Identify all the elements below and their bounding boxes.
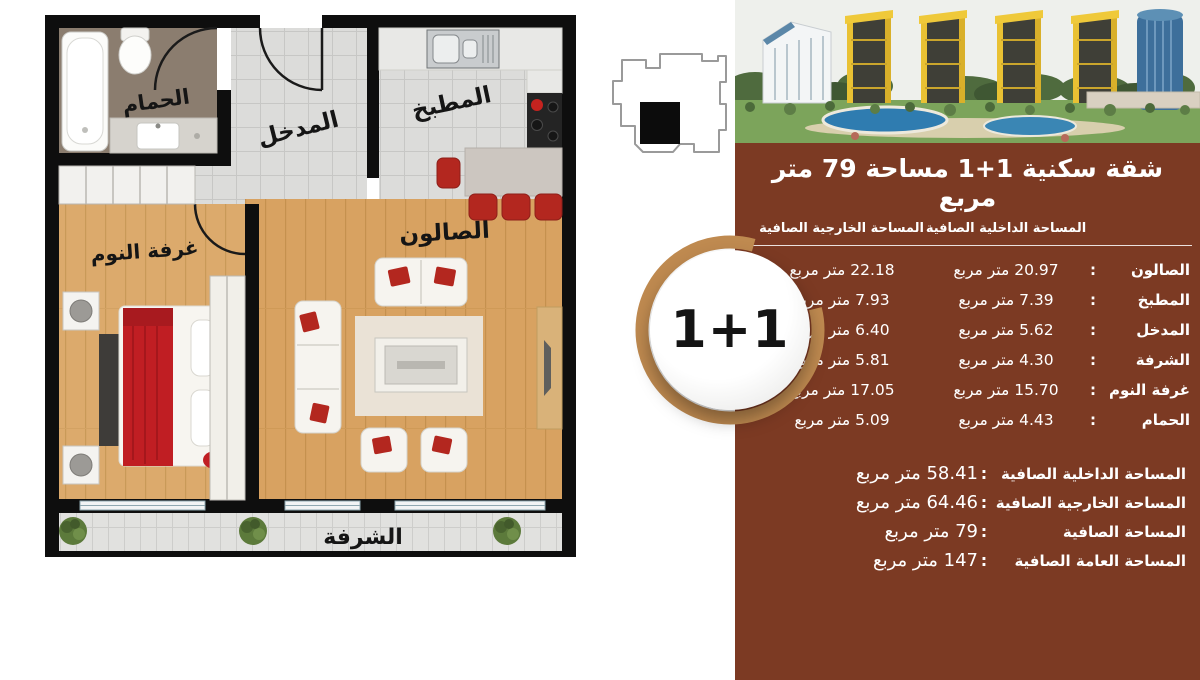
living-label: الصالون	[399, 218, 491, 249]
summary-line: المساحة العامة الصافية : 147 متر مربع	[747, 546, 1186, 575]
wardrobe	[210, 276, 245, 500]
key-plan	[588, 46, 733, 164]
summary-label: المساحة الداخلية الصافية	[990, 465, 1186, 483]
brochure-page: الحمام المدخل المطبخ الصالون غرفة النوم …	[0, 0, 1200, 680]
room-label: الصالون	[1098, 261, 1190, 279]
pool-left	[823, 107, 947, 133]
unit-location-marker	[640, 102, 680, 144]
coffee-table	[375, 338, 467, 392]
separator: :	[1088, 261, 1098, 279]
tv-unit	[537, 307, 562, 429]
unit-type-badge: 1+1	[632, 232, 828, 428]
separator: :	[1088, 321, 1098, 339]
summary-label: المساحة العامة الصافية	[990, 552, 1186, 570]
separator: :	[1088, 411, 1098, 429]
toilet	[119, 28, 151, 74]
stove	[527, 93, 562, 148]
summary-value: 79 متر مربع	[747, 521, 978, 542]
internal-area-value: 5.62 متر مربع	[924, 321, 1088, 339]
balcony-windows	[80, 501, 545, 510]
summary-label: المساحة الصافية	[990, 523, 1186, 541]
summary-value: 58.41 متر مربع	[747, 463, 978, 484]
room-label: المطبخ	[1098, 291, 1190, 309]
balcony-label: الشرفة	[323, 525, 403, 550]
separator: :	[978, 493, 990, 512]
badge-text: 1+1	[671, 300, 790, 360]
bathroom-sink-counter	[110, 118, 217, 153]
bedroom-closets	[59, 166, 195, 204]
internal-area-value: 4.30 متر مربع	[924, 351, 1088, 369]
totals-summary: المساحة الداخلية الصافية : 58.41 متر مرب…	[747, 459, 1186, 575]
summary-value: 147 متر مربع	[747, 550, 978, 571]
separator: :	[1088, 381, 1098, 399]
room-label: الحمام	[1098, 411, 1190, 429]
pool-right	[984, 116, 1076, 136]
sofa-top	[375, 258, 467, 306]
summary-line: المساحة الداخلية الصافية : 58.41 متر مرب…	[747, 459, 1186, 488]
separator: :	[978, 522, 990, 541]
balcony-floor	[59, 513, 562, 551]
badge-circle: 1+1	[650, 250, 810, 410]
room-label: المدخل	[1098, 321, 1190, 339]
room-label: الشرفة	[1098, 351, 1190, 369]
unit-title: شقة سكنية 1+1 مساحة 79 متر مربع	[735, 143, 1200, 217]
internal-area-column-header: المساحة الداخلية الصافية	[924, 221, 1088, 236]
room-label: غرفة النوم	[1098, 381, 1190, 399]
sofa-left	[295, 301, 341, 433]
internal-area-value: 7.39 متر مربع	[924, 291, 1088, 309]
white-tower	[763, 22, 831, 103]
internal-area-value: 20.97 متر مربع	[924, 261, 1088, 279]
floor-plan: الحمام المدخل المطبخ الصالون غرفة النوم …	[45, 8, 580, 560]
kitchen-sink	[427, 30, 499, 68]
internal-area-value: 4.43 متر مربع	[924, 411, 1088, 429]
project-photo	[735, 0, 1200, 143]
entrance-floor	[231, 28, 367, 199]
separator: :	[1088, 351, 1098, 369]
internal-area-value: 15.70 متر مربع	[924, 381, 1088, 399]
separator: :	[1088, 291, 1098, 309]
summary-line: المساحة الصافية : 79 متر مربع	[747, 517, 1186, 546]
summary-value: 64.46 متر مربع	[747, 492, 978, 513]
bathtub	[62, 32, 108, 151]
separator: :	[978, 551, 990, 570]
summary-label: المساحة الخارجية الصافية	[990, 494, 1186, 512]
summary-line: المساحة الخارجية الصافية : 64.46 متر مرب…	[747, 488, 1186, 517]
separator: :	[978, 464, 990, 483]
